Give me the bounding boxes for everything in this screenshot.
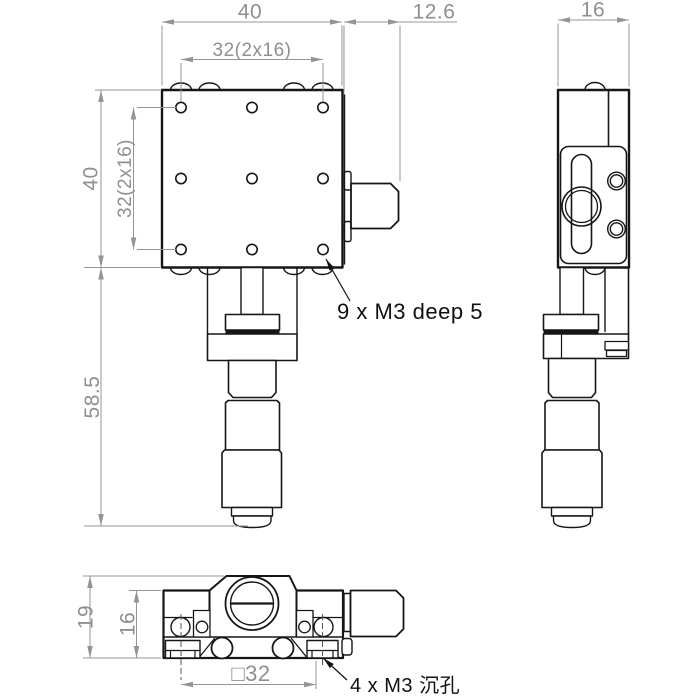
- bottom-view: [164, 576, 404, 659]
- counterbore-pocket-left: [166, 641, 201, 659]
- side-body: [558, 90, 629, 268]
- dim-label-bottom-overall: 19: [75, 605, 98, 629]
- thimble-step-front: [232, 508, 273, 517]
- micrometer-collar-front: [226, 315, 280, 331]
- micrometer-sleeve-front: [226, 401, 280, 451]
- micrometer-knob-front: [351, 184, 399, 229]
- translation-stage-drawing: 40 32(2x16) 12.6 40 32(2x: [0, 0, 700, 700]
- annotation-bottom-thread: 4 x M3 沉孔: [323, 658, 460, 697]
- side-view: [542, 83, 629, 528]
- bearing-ball-right: [314, 618, 333, 637]
- dim-bottom-body: 16: [117, 591, 162, 659]
- micrometer-thimble-side: [542, 450, 602, 508]
- micrometer-stem-front: [241, 268, 263, 315]
- dim-label-side-depth: 16: [581, 0, 605, 22]
- dim-label-front-width: 40: [238, 1, 262, 24]
- micrometer-sleeve-side: [545, 401, 599, 451]
- center-hole-left: [212, 638, 233, 659]
- micrometer-thimble-front: [222, 450, 282, 508]
- thimble-step-side: [552, 508, 593, 517]
- dim-knob-length: 12.6: [344, 1, 457, 182]
- micrometer-knob-bottom-view: [351, 591, 404, 637]
- annotation-label-bottom-thread: 4 x M3 沉孔: [350, 674, 460, 697]
- technical-drawing-canvas: 40 32(2x16) 12.6 40 32(2x: [0, 0, 700, 700]
- rail-ball-right: [299, 621, 311, 633]
- rail-ball-left: [196, 621, 208, 633]
- clamp-tab-upper: [605, 342, 629, 351]
- dim-label-knob-length: 12.6: [413, 1, 456, 24]
- center-hole-right: [273, 638, 294, 659]
- micrometer-stem-side: [560, 268, 584, 315]
- annotation-label-top-thread: 9 x M3 deep 5: [337, 299, 483, 324]
- knob-bushing: [342, 639, 352, 656]
- micrometer-barrel-side: [549, 359, 596, 398]
- micrometer-barrel-front: [229, 361, 277, 398]
- clamp-tab-lower: [607, 351, 627, 357]
- dim-label-hole-span-h: 32(2x16): [213, 40, 292, 61]
- dim-label-hole-span-v: 32(2x16): [115, 139, 136, 218]
- dim-label-bottom-body: 16: [117, 612, 140, 636]
- dim-side-depth: 16: [558, 0, 629, 87]
- thimble-cap-side: [554, 516, 591, 528]
- micrometer-collar-side: [544, 315, 599, 331]
- knob-tab-lower: [345, 222, 352, 242]
- dim-label-mount-square: □32: [231, 661, 270, 686]
- dim-label-front-height: 40: [80, 166, 103, 190]
- annotation-top-thread: 9 x M3 deep 5: [326, 259, 483, 324]
- knob-tab-bottom-view: [344, 594, 351, 632]
- knob-tab-upper: [345, 172, 352, 191]
- dim-label-overall-height: 58.5: [81, 376, 104, 419]
- clamp-block-front: [208, 334, 298, 361]
